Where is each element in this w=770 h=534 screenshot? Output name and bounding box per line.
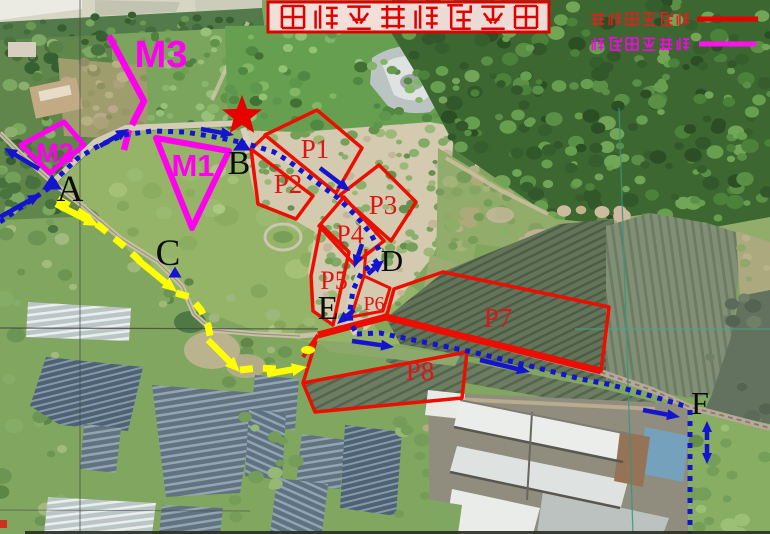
svg-text:P2: P2 (274, 169, 303, 199)
svg-text:P4: P4 (336, 220, 363, 249)
svg-text:F: F (691, 385, 709, 421)
svg-text:P5: P5 (320, 266, 347, 295)
svg-text:P7: P7 (484, 303, 513, 333)
svg-text:E: E (318, 290, 339, 327)
svg-text:D: D (381, 243, 403, 278)
svg-text:M1: M1 (171, 148, 214, 183)
svg-text:B: B (228, 145, 251, 182)
svg-text:P1: P1 (301, 134, 330, 164)
svg-text:M2: M2 (36, 138, 74, 168)
svg-text:A: A (57, 169, 84, 210)
svg-text:P8: P8 (406, 356, 435, 386)
svg-text:C: C (156, 233, 181, 274)
svg-text:M3: M3 (135, 34, 188, 76)
svg-text:P6: P6 (363, 293, 384, 315)
svg-text:P3: P3 (369, 190, 398, 220)
